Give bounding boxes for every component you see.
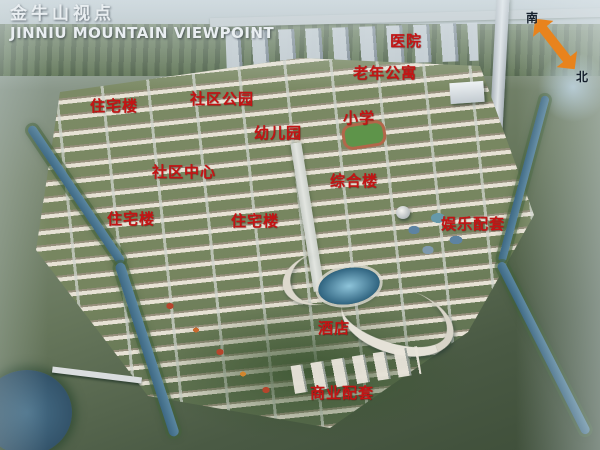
aerial-masterplan-rendering: 金牛山视点 JINNIU MOUNTAIN VIEWPOINT 南 北 医院 老… xyxy=(0,0,600,450)
compass-south-label: 南 xyxy=(526,9,538,26)
pond-bottom-left xyxy=(0,370,72,450)
compass-north-label: 北 xyxy=(576,68,588,85)
label-elementary-school: 小学 xyxy=(343,107,375,128)
label-residential-3: 住宅楼 xyxy=(231,210,279,231)
hospital-building xyxy=(449,81,484,104)
label-hotel: 酒店 xyxy=(318,317,350,338)
label-comprehensive-building: 综合楼 xyxy=(330,170,378,191)
label-elderly-apartments: 老年公寓 xyxy=(353,62,417,83)
label-community-park: 社区公园 xyxy=(190,88,254,109)
label-community-center: 社区中心 xyxy=(152,161,216,182)
viewpoint-title: 金牛山视点 JINNIU MOUNTAIN VIEWPOINT xyxy=(10,4,274,42)
label-commercial-facilities: 商业配套 xyxy=(310,382,374,403)
label-entertainment-facilities: 娱乐配套 xyxy=(441,213,505,234)
label-residential-2: 住宅楼 xyxy=(107,208,155,229)
label-kindergarten: 幼儿园 xyxy=(254,122,302,143)
label-residential-1: 住宅楼 xyxy=(90,95,138,116)
autumn-trees-cluster xyxy=(148,278,298,408)
dome-building xyxy=(396,206,410,219)
title-chinese: 金牛山视点 xyxy=(10,4,274,24)
river-right-lower xyxy=(496,260,591,435)
label-hospital: 医院 xyxy=(390,30,422,51)
title-english: JINNIU MOUNTAIN VIEWPOINT xyxy=(10,24,274,42)
